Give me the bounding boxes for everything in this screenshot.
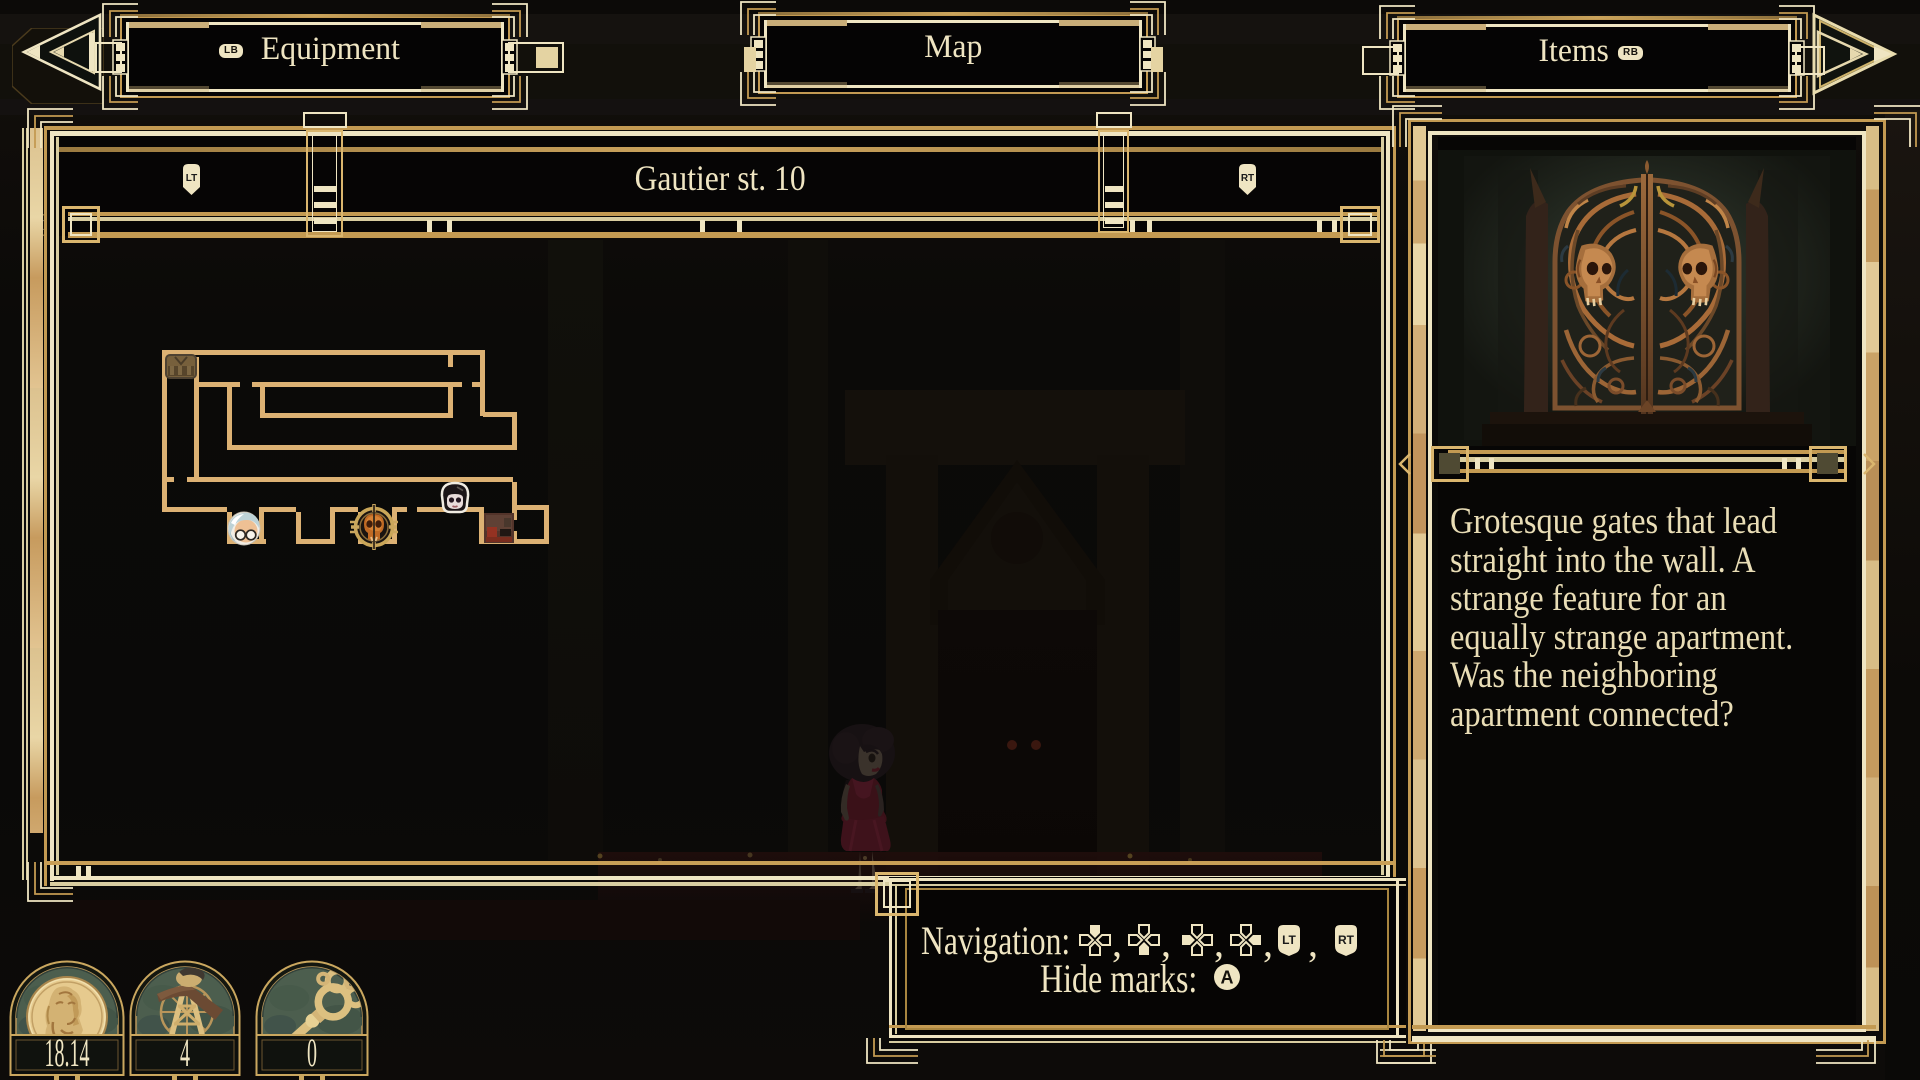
svg-text:RT: RT	[1241, 173, 1254, 184]
svg-text:RT: RT	[1338, 933, 1355, 947]
svg-text:LT: LT	[186, 173, 197, 184]
svg-text:4: 4	[180, 1031, 190, 1075]
svg-text:18.14: 18.14	[45, 1031, 90, 1075]
svg-text:LT: LT	[1282, 933, 1296, 947]
svg-text:A: A	[1221, 968, 1234, 988]
svg-text:0: 0	[307, 1031, 317, 1075]
